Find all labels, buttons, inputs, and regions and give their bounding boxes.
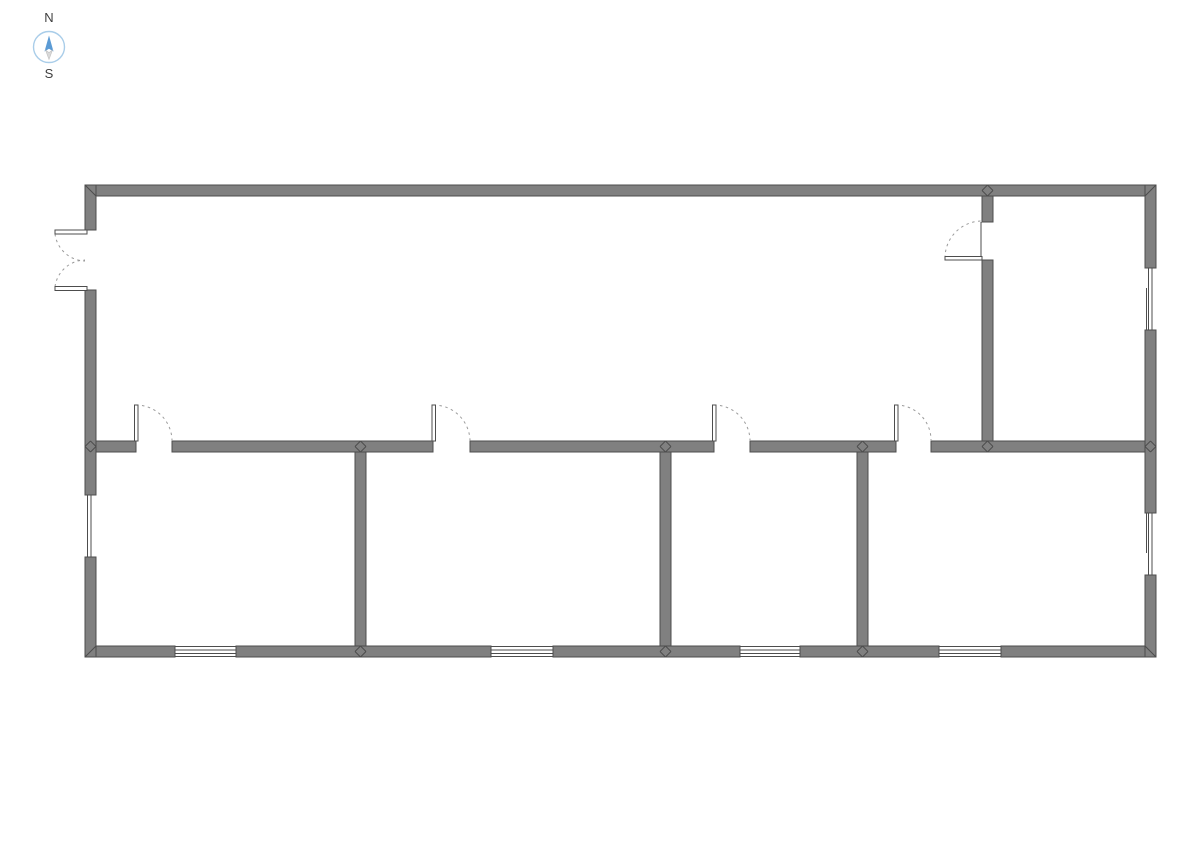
door-leaf: [55, 287, 87, 291]
door-leaf: [55, 230, 87, 234]
window-left[interactable]: [88, 495, 92, 557]
outer-wall-top[interactable]: [85, 185, 1156, 196]
window-bottom-2[interactable]: [491, 647, 553, 657]
interior-wall-vertical-room1[interactable]: [355, 452, 366, 646]
interior-wall-horizontal-2[interactable]: [172, 441, 433, 452]
window-bottom-4[interactable]: [939, 647, 1001, 657]
outer-wall-right-3[interactable]: [1145, 575, 1156, 657]
door-swing-arc: [55, 260, 85, 287]
door-swing-arc: [714, 405, 750, 441]
door-swing-arc: [896, 405, 931, 441]
door-leaf: [432, 405, 436, 441]
door-leaf: [945, 257, 982, 261]
door-leaf: [135, 405, 139, 441]
window-right-upper[interactable]: [1147, 268, 1153, 330]
outer-wall-bottom-4[interactable]: [800, 646, 939, 657]
outer-wall-right-2[interactable]: [1145, 330, 1156, 513]
compass-south-label: S: [45, 66, 54, 81]
interior-wall-horizontal-4[interactable]: [750, 441, 896, 452]
outer-wall-bottom-3[interactable]: [553, 646, 740, 657]
interior-wall-horizontal-1[interactable]: [96, 441, 136, 452]
door-leaf: [713, 405, 717, 441]
compass-north-label: N: [44, 10, 53, 25]
compass-north-arrow-icon: [45, 36, 54, 52]
interior-door-2[interactable]: [432, 405, 470, 441]
interior-wall-vertical-room3[interactable]: [857, 452, 868, 646]
outer-wall-left-1[interactable]: [85, 185, 96, 230]
door-swing-arc: [434, 405, 471, 441]
outer-wall-left-3[interactable]: [85, 557, 96, 657]
window-bottom-3[interactable]: [740, 647, 800, 657]
outer-wall-right-1[interactable]: [1145, 185, 1156, 268]
compass: N S: [34, 10, 65, 81]
entry-double-door[interactable]: [55, 230, 87, 291]
interior-wall-horizontal-5[interactable]: [931, 441, 1145, 452]
outer-wall-bottom-1[interactable]: [85, 646, 175, 657]
interior-wall-vertical-topright-1[interactable]: [982, 196, 993, 222]
interior-door-1[interactable]: [135, 405, 173, 441]
door-swing-arc: [945, 221, 982, 258]
interior-door-4[interactable]: [895, 405, 932, 441]
outer-wall-bottom-5[interactable]: [1001, 646, 1156, 657]
interior-wall-vertical-room2[interactable]: [660, 452, 671, 646]
interior-wall-vertical-topright-2[interactable]: [982, 260, 993, 441]
door-swing-arc: [136, 405, 172, 441]
door-leaf: [895, 405, 899, 441]
interior-door-3[interactable]: [713, 405, 751, 441]
top-right-room-door[interactable]: [945, 221, 982, 260]
interior-wall-horizontal-3[interactable]: [470, 441, 714, 452]
outer-wall-left-2[interactable]: [85, 290, 96, 495]
door-swing-arc: [55, 234, 85, 261]
floor-plan: [55, 185, 1156, 657]
outer-wall-bottom-2[interactable]: [236, 646, 491, 657]
window-bottom-1[interactable]: [175, 647, 236, 657]
floor-plan-canvas: N S: [0, 0, 1191, 842]
window-right-lower[interactable]: [1147, 513, 1153, 575]
compass-south-arrow-icon: [46, 50, 53, 60]
